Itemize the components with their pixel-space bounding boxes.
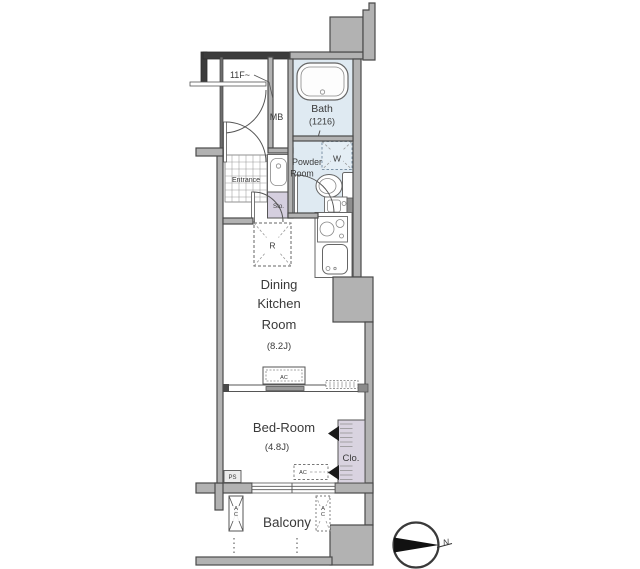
refrigerator-label: R <box>269 241 275 251</box>
folding-door-icon <box>328 426 339 441</box>
dk-label-2: Kitchen <box>257 296 300 311</box>
entrance-label: Entrance <box>232 177 260 184</box>
floor-note: 11F~ <box>230 70 250 80</box>
kitchen-sink-icon <box>323 245 348 275</box>
toilet-icon <box>316 173 354 200</box>
bathtub-icon <box>297 63 348 100</box>
kitchen-counter <box>315 213 352 278</box>
folding-door-icon <box>328 465 339 480</box>
meter-box-label: MB <box>270 112 284 122</box>
balcony-dotted-lines <box>234 538 297 555</box>
storage-label: Sto. <box>273 203 284 210</box>
powder-room-label-2: Room <box>290 169 313 179</box>
ac-outdoor-left-label: AC <box>233 506 239 518</box>
dk-size-label: (8.2J) <box>267 341 291 352</box>
dk-label-3: Room <box>262 317 297 332</box>
pipe-shaft-label: PS <box>228 475 236 481</box>
closet <box>328 420 365 483</box>
bedroom-size-label: (4.8J) <box>265 442 289 453</box>
floor-plan-page: 11F~ MB Bath (1216) Powder Room W Entran… <box>0 0 640 569</box>
corridor-edge-line <box>190 82 266 86</box>
ac-outdoor-right-label: AC <box>320 506 326 518</box>
compass-north-label: N <box>442 536 451 547</box>
closet-label: Clo. <box>343 453 360 464</box>
washbasin-icon <box>268 155 290 193</box>
washer-label: W <box>333 154 341 164</box>
dk-label-1: Dining <box>261 277 298 292</box>
sliding-door-panel <box>266 387 304 391</box>
stove-icon <box>318 217 348 243</box>
powder-room-label-1: Powder <box>292 157 322 167</box>
floor-plan: 11F~ MB Bath (1216) Powder Room W Entran… <box>0 0 640 569</box>
powder-sink-box <box>325 197 348 214</box>
bedroom-label: Bed-Room <box>253 420 315 435</box>
ac-dk-label: AC <box>280 375 288 381</box>
bath-label: Bath <box>311 103 333 115</box>
bath-size-label: (1216) <box>309 117 335 127</box>
balcony-label: Balcony <box>263 515 311 530</box>
ac-bedroom-label: AC <box>299 470 307 476</box>
balcony-window <box>252 483 335 493</box>
